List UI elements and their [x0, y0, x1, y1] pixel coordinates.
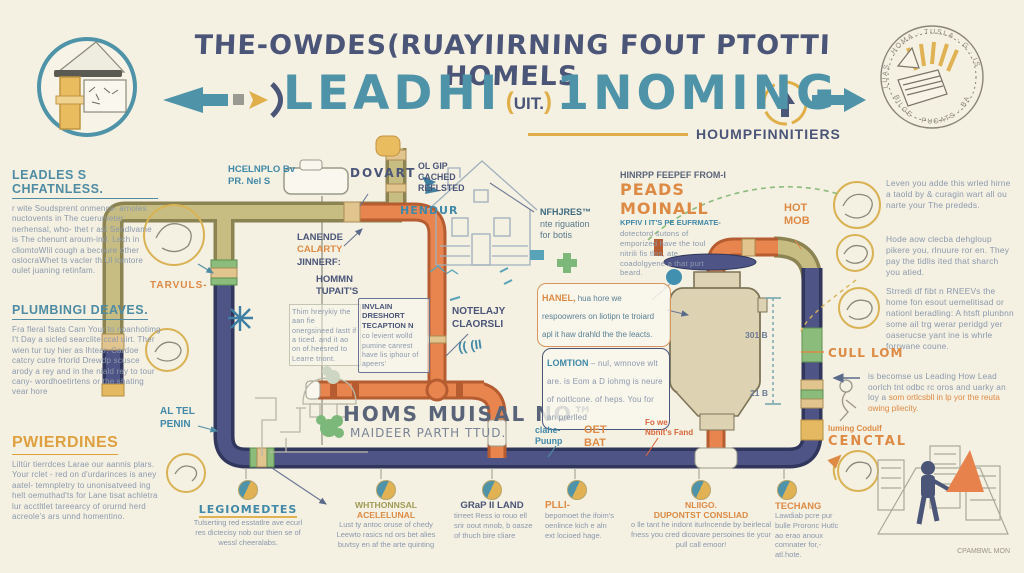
dimension-top: 301 B: [745, 330, 768, 340]
thim-note: Thim hrerykiy the aan fie onergsineed la…: [289, 304, 361, 366]
label-lanende-stack: LANENDE CALARTY JINNERF:: [297, 232, 343, 269]
label-dovart: DOVART: [350, 166, 417, 180]
label-line: OL GIP: [418, 161, 448, 171]
gray-square-icon: [233, 94, 244, 105]
invlain-box: INVLAIN DRESHORT TECAPTION N co levient …: [358, 298, 430, 373]
label-cenctal: CENCTAL: [828, 434, 907, 449]
label-line: NOTELAJY: [452, 306, 505, 317]
peads-block: HINRPP FEEPEF FROM-I PEADS MOINALL KPFIV…: [620, 170, 750, 278]
label-line: nte riguation: [540, 219, 590, 229]
legend-icon: [238, 480, 258, 500]
title-lead: LEADHI: [283, 66, 501, 121]
legend-icon: [376, 480, 396, 500]
title-line2: LEADHI (UIT.) 1NOMING: [283, 66, 761, 121]
infographic-poster: LUAS · HOMA · TUSLA · G · IS BILGE · PUG…: [0, 0, 1024, 573]
invlain-body: co levient wolld pumine canrest have lis…: [362, 332, 426, 368]
label-line: BAT: [584, 437, 606, 449]
label-line: Nbnlt's Fand: [645, 428, 693, 437]
title-paren-close: ): [544, 88, 552, 115]
label-line: TUPAIT'S: [316, 286, 358, 297]
label-cenctal-small: luming Codulf: [828, 424, 882, 433]
right-paragraph-3: Strredi df fibt n RNEEVs the home fon es…: [886, 286, 1014, 352]
label-line: CLAORSLI: [452, 319, 503, 330]
label-line: for botis: [540, 230, 572, 240]
label-nfhjres: NFHJRES™ nte riguation for botis: [540, 207, 591, 242]
label-calarty: CALARTY: [297, 244, 342, 255]
credit-text: CPAMBWL MON: [900, 548, 1010, 555]
label-notelajy: NOTELAJY CLAORSLI: [452, 306, 505, 331]
green-pipe-segment: [802, 328, 822, 362]
subtitle-rule: [528, 133, 688, 136]
green-splat-icon: [316, 415, 344, 438]
water-drip-marks: [450, 268, 512, 300]
label-kpfiv: KPFIV I IT'S PE EUFRMATE-: [620, 218, 750, 227]
lead-note: is becomse us Leading How Lead oorlch tn…: [868, 372, 1014, 415]
label-al-tel-penin: AL TEL PENIN: [160, 406, 195, 431]
label-line: PR. Nel S: [228, 176, 270, 187]
legend-icon: [777, 480, 797, 500]
house-pipe-badge-icon: [39, 39, 135, 135]
label-jinnerf: JINNERF:: [297, 257, 341, 268]
label-hendur: HENDUR: [400, 204, 458, 217]
label-clahe-puunp: clahe- Puunp: [535, 425, 562, 446]
label-line: clahe-: [535, 425, 560, 435]
town-illustration: [878, 446, 1008, 534]
dimension-bottom: 21 B: [750, 388, 768, 398]
legend-heading: LEGIOMEDTES: [199, 503, 298, 518]
legend-connectors: [246, 468, 784, 479]
label-line: Fo we: [645, 418, 668, 427]
label-line: HOT: [784, 202, 807, 214]
label-fo-we: Fo we Nbnlt's Fand: [645, 418, 693, 438]
label-peads: PEADS MOINALL: [620, 180, 750, 218]
legend-item-grap: GRaP II LAND tirreet Ress io rouo ell sr…: [446, 480, 538, 540]
lomtion-body: – nul, wmnove wlt are. is Eom a D iohmg …: [547, 359, 663, 422]
legend-body: o lle tant he indont iturlncende by beir…: [630, 520, 772, 549]
label-line: AL TEL: [160, 406, 195, 417]
section-body: Liltür tierrdces Larae our aannis plars.…: [12, 460, 162, 522]
right-paragraph-1: Leven you adde this wrled hirne a taold …: [886, 178, 1014, 211]
blue-asterisk-icon: [228, 306, 253, 331]
label-hinrpp: HINRPP FEEPEF FROM-I: [620, 170, 750, 180]
legend-item-whthonnsal: WHTHONNSAL ACELELUNAL Lust ty antoc orus…: [330, 480, 442, 549]
section-body: Fra fleral fsats Cam Your to noanhotimg …: [12, 325, 162, 398]
section-heading: LEADLES S CHFATNLESS.: [12, 168, 158, 199]
tank-drain-coupling: [695, 448, 737, 468]
legend-body: bepomoet the ifoim's oenlince kich e aln…: [545, 511, 615, 540]
label-tarvuls: TARVULS-: [150, 280, 208, 291]
label-hot-mob: HOT MOB: [784, 202, 810, 228]
left-section-pwierdines: PWIERDINES Liltür tierrdces Larae our aa…: [12, 434, 162, 522]
lomtion-label: LOMTION: [547, 358, 589, 368]
label-line: NFHJRES™: [540, 207, 591, 217]
legend-heading: NLIIGO.: [630, 500, 772, 510]
legend-icon: [691, 480, 711, 500]
fist-icon: [376, 136, 400, 156]
label-line: REFLSTED: [418, 183, 464, 193]
title-paren-open: (: [506, 88, 514, 115]
label-oet-bat: OET BAT: [584, 424, 607, 450]
label-ol-gip: OL GIP CACHED REFLSTED: [418, 161, 464, 194]
legend-item-techang: TECHANG Lawdiab pcre pur bulle Proronc H…: [775, 480, 861, 560]
label-hcelnplo: HCELNPLO Bv PR. Nel S: [228, 164, 295, 188]
gold-chevron-icon: [249, 91, 268, 109]
hanel-callout: HANEL, hua hore we respoowrers on liotip…: [537, 283, 671, 347]
section-heading: PLUMBINGI DEAVES.: [12, 303, 148, 320]
left-section-leadless: LEADLES S CHFATNLESS. r wite Soudsprent …: [12, 168, 158, 277]
label-line: HCELNPLO Bv: [228, 164, 295, 175]
legend-body: Lust ty antoc oruse of chedy Leewto rasi…: [330, 520, 442, 549]
label-cull-lom: CULL LOM: [828, 346, 903, 360]
green-plus-icon: [557, 253, 577, 273]
label-lanende: LANENDE: [297, 232, 343, 243]
legend-heading: GRaP II LAND: [446, 500, 538, 511]
legend-body: Lawdiab pcre pur bulle Proronc Hutlc ao …: [775, 511, 845, 560]
legend-heading2: DUPONTST CONSLIAD: [630, 510, 772, 520]
label-hommn: HOMMN TUPAIT'S: [316, 274, 358, 299]
pipe-tee-joint: [427, 380, 447, 400]
label-line: HOMMN: [316, 274, 353, 285]
legend-item-nliigo: NLIIGO. DUPONTST CONSLIAD o lle tant he …: [630, 480, 772, 549]
orange-cone-roof: [946, 450, 984, 492]
label-line: PENIN: [160, 419, 191, 430]
hanel-label: HANEL,: [542, 293, 576, 303]
person-sketch-icon: [834, 378, 860, 421]
label-line: Puunp: [535, 436, 562, 446]
legend-heading: WHTHONNSAL: [330, 500, 442, 510]
label-line: MOB: [784, 215, 810, 227]
right-paragraph-2: Hode aow clecba dehgloup pikere you, rln…: [886, 234, 1014, 278]
legend-body: tirreet Ress io rouo ell srir oout mnob,…: [446, 511, 538, 540]
section-body: r wite Soudsprent onmencs- arnoles nucto…: [12, 204, 158, 277]
legend-icon: [567, 480, 587, 500]
title-mid: UIT.: [514, 94, 544, 113]
label-line: OET: [584, 424, 607, 436]
label-line: CACHED: [418, 172, 456, 182]
legend-body: Tulserting red esstatlre ave ecurl res d…: [192, 518, 304, 547]
legend-heading2: ACELELUNAL: [330, 510, 442, 520]
legend-heading: TECHANG: [775, 500, 861, 511]
left-section-plumbing: PLUMBINGI DEAVES. Fra fleral fsats Cam Y…: [12, 301, 162, 398]
legend-item-plli: PLLI- bepomoet the ifoim's oenlince kich…: [545, 480, 615, 540]
section-heading: PWIERDINES: [12, 434, 118, 455]
subtitle: HOUMPFINNITIERS: [696, 126, 841, 142]
legend-icon: [482, 480, 502, 500]
legend-heading: PLLI-: [545, 500, 615, 511]
label-maideer: MAIDEER PARTH TTUD.: [350, 426, 506, 440]
invlain-title: INVLAIN DRESHORT TECAPTION N: [362, 302, 426, 330]
peads-body: dotectord sutons of emporized have the t…: [620, 229, 720, 278]
legend-item-legiomedtes: LEGIOMEDTES Tulserting red esstatlre ave…: [192, 480, 304, 547]
title-incoming: 1NOMING: [556, 66, 838, 121]
